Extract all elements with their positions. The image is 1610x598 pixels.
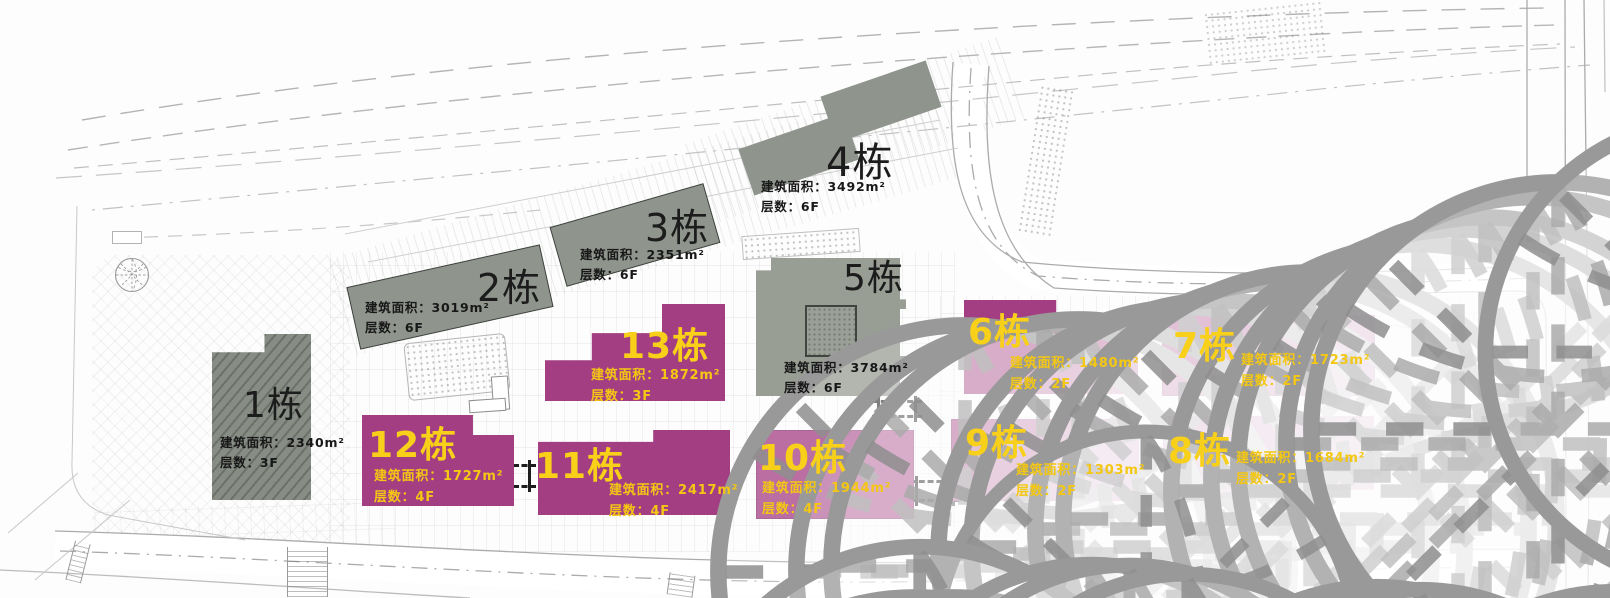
tree-icon [1185, 590, 1610, 598]
building-info: 建筑面积：1303m² 层数：2F [1016, 461, 1145, 503]
tree-icon [1465, 582, 1610, 598]
building-info: 建筑面积：1944m² 层数：4F [762, 479, 891, 521]
building-info: 建筑面积：2340m² 层数：3F [220, 433, 345, 473]
building-number: 1栋 [243, 388, 304, 424]
building-number: 10栋 [758, 441, 847, 477]
building-number: 9栋 [965, 426, 1028, 462]
building-number: 7栋 [1173, 329, 1236, 365]
building-info: 建筑面积：3784m² 层数：6F [784, 358, 909, 398]
planting-strip-east [1016, 84, 1073, 237]
tree-icon [1142, 587, 1610, 598]
tree-icon [1380, 592, 1610, 598]
building-info: 建筑面积：1872m² 层数：3F [591, 366, 720, 408]
building-info: 建筑面积：3492m² 层数：6F [761, 177, 886, 217]
parking-strip [65, 541, 90, 584]
building-number: 3栋 [645, 209, 709, 247]
building-info: 建筑面积：2417m² 层数：4F [609, 481, 738, 523]
building-number: 5栋 [843, 261, 904, 297]
building-number: 6栋 [968, 315, 1031, 351]
building-number: 11栋 [535, 449, 624, 485]
walkway-crossing [667, 572, 696, 597]
building-info: 建筑面积：1727m² 层数：4F [374, 467, 503, 509]
paving-bottom-left [94, 500, 396, 565]
planting-patch-top [1203, 0, 1328, 64]
site-marker [112, 231, 142, 244]
walkway-crossing [1129, 577, 1156, 598]
building-info: 建筑面积：3019m² 层数：6F [365, 298, 490, 338]
building-5-courtyard [805, 305, 857, 357]
tree-icon [965, 574, 1409, 598]
building-number: 12栋 [368, 428, 457, 464]
walkway-crossing [287, 547, 328, 597]
building-info: 建筑面积：2351m² 层数：6F [580, 245, 705, 285]
corridor-connector-5-10 [872, 400, 922, 418]
building-number: 8栋 [1168, 434, 1231, 470]
tree-icon [685, 547, 1154, 598]
building-info: 建筑面积：1480m² 层数：2F [1010, 354, 1139, 396]
building-info: 建筑面积：1723m² 层数：2F [1241, 351, 1370, 393]
site-structure [469, 398, 507, 414]
site-plan: 1栋 建筑面积：2340m² 层数：3F 2栋 建筑面积：3019m² 层数：6… [0, 0, 1610, 598]
tree-icon [869, 564, 1313, 598]
tree-icon [1600, 588, 1610, 598]
building-number: 13栋 [620, 329, 709, 365]
building-info: 建筑面积：1684m² 层数：2F [1236, 449, 1365, 491]
